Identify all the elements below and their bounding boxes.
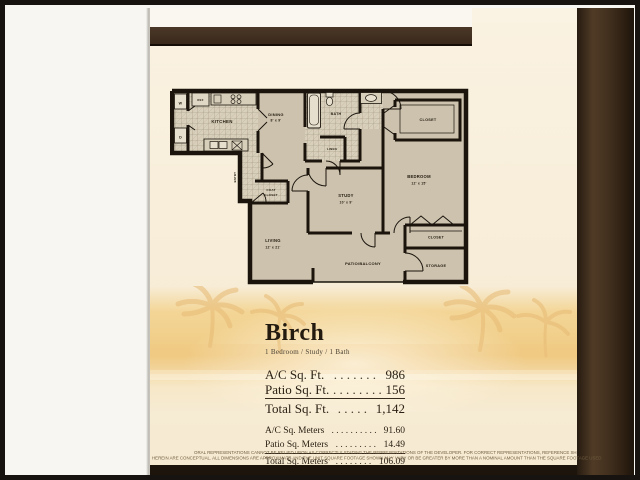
storage-label: STORAGE: [426, 264, 447, 268]
stat-row-total-sqft: Total Sq. Ft. . . . . . 1,142: [265, 401, 405, 416]
disclaimer-line-2: HEREIN ARE CONCEPTUAL. ALL DIMENSIONS AR…: [152, 456, 577, 462]
stat-row-ac-sqft: A/C Sq. Ft. . . . . . . . 986: [265, 367, 405, 382]
dot-leader: . . . . . . . . . .: [324, 425, 383, 439]
stat-value: 1,142: [376, 401, 405, 416]
page-top-margin: [150, 8, 472, 27]
coat-closet-label: CLOSET: [264, 193, 278, 197]
stat-label: Total Sq. Ft.: [265, 401, 329, 416]
stat-row-patio-sqft: Patio Sq. Ft. . . . . . . . . 156: [265, 382, 405, 399]
washer-label: W: [179, 102, 183, 106]
unit-subtitle: 1 Bedroom / Study / 1 Bath: [265, 348, 405, 356]
sink-bowl-2: [219, 142, 227, 149]
dining-dims: 8' x 9': [271, 119, 282, 123]
stat-value: 91.60: [384, 425, 405, 439]
coat-label: COAT: [266, 188, 275, 192]
page-bottom-edge: [150, 465, 577, 475]
legal-disclaimer: ORAL REPRESENTATIONS CANNOT BE RELIED UP…: [152, 450, 577, 461]
unit-name: Birch: [265, 320, 405, 346]
square-meters-stats: A/C Sq. Meters . . . . . . . . . . 91.60…: [265, 425, 405, 470]
unit-info-block: Birch 1 Bedroom / Study / 1 Bath A/C Sq.…: [265, 320, 405, 470]
dining-label: DINING: [268, 112, 284, 117]
dot-leader: . . . . .: [329, 401, 376, 416]
toilet-tank: [326, 93, 333, 98]
square-feet-stats: A/C Sq. Ft. . . . . . . . 986 Patio Sq. …: [265, 367, 405, 416]
ref-label: REF: [197, 98, 203, 102]
sink-bowl-1: [210, 142, 218, 149]
bedroom-label: BEDROOM: [407, 174, 431, 179]
toilet: [326, 97, 332, 105]
dryer-label: D: [179, 136, 182, 140]
scanned-brochure-page: W D REF KITCHEN DINING 8' x 9' BATH LINE…: [0, 0, 640, 480]
study-label: STUDY: [338, 193, 353, 198]
floor-plan: W D REF KITCHEN DINING 8' x 9' BATH LINE…: [170, 85, 470, 287]
study-dims: 10' x 9': [339, 201, 352, 205]
stat-row-ac-sqm: A/C Sq. Meters . . . . . . . . . . 91.60: [265, 425, 405, 439]
living-label: LIVING: [265, 238, 280, 243]
brown-spine-strip: [577, 8, 634, 475]
stat-value: 986: [386, 367, 406, 382]
stat-label: A/C Sq. Meters: [265, 425, 324, 439]
bedroom-dims: 12' x 15': [411, 182, 426, 186]
living-dims: 12' x 21': [265, 246, 280, 250]
dot-leader: . . . . . . .: [324, 367, 385, 382]
patio-label: PATIO/BALCONY: [345, 261, 381, 266]
brown-header-bar: [150, 27, 472, 46]
bath-label: BATH: [331, 112, 342, 116]
vanity-sink: [366, 95, 377, 102]
dot-leader: . . . . . . . .: [329, 382, 385, 397]
stat-value: 156: [386, 382, 406, 397]
bedroom-closet-label: CLOSET: [420, 118, 437, 122]
stat-label: Patio Sq. Ft.: [265, 382, 329, 397]
bottom-closet-label: CLOSET: [428, 236, 445, 240]
palm-tree-left: [178, 286, 242, 346]
linen-label: LINEN: [327, 147, 337, 151]
entry-label: ENTRY: [233, 172, 237, 183]
kitchen-label: KITCHEN: [211, 119, 232, 124]
palm-tree-right: [446, 286, 514, 350]
stat-label: A/C Sq. Ft.: [265, 367, 324, 382]
